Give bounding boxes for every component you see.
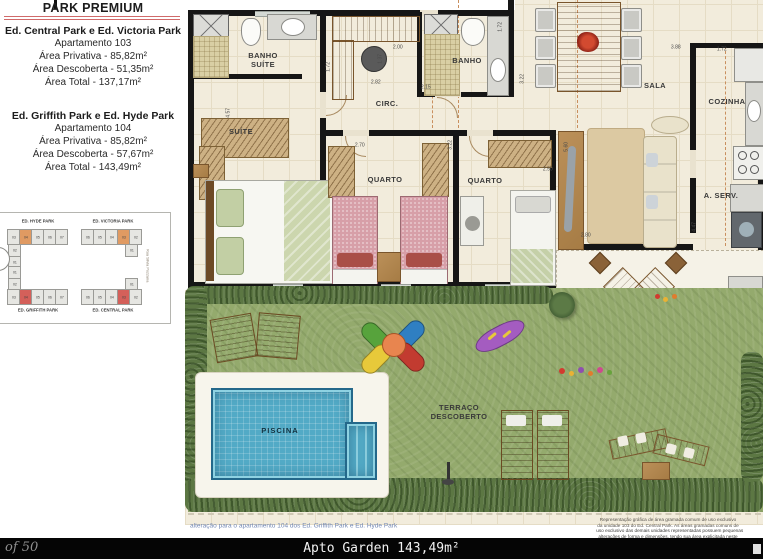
room-label-banho: BANHO	[439, 57, 495, 66]
brochure-page: PARK PREMIUM Ed. Central Park e Ed. Vict…	[0, 0, 763, 559]
unit-number: 02	[134, 235, 138, 239]
block1-line: Área Descoberta - 51,35m²	[0, 64, 186, 75]
dimension: 3.88	[671, 45, 681, 50]
burner	[750, 151, 759, 160]
unit-number: 02	[13, 249, 17, 253]
dimension: 2.15	[421, 85, 431, 90]
burner	[738, 165, 747, 174]
ottoman	[651, 116, 689, 134]
dimension: 2.50	[543, 167, 553, 172]
unit-number: 07	[60, 235, 64, 239]
keyplan-building-griffith: 03 04 05 06 07	[8, 289, 68, 305]
cushion	[646, 153, 658, 167]
stove	[733, 146, 763, 180]
dimension: 1.72	[326, 62, 331, 72]
keyplan-building-label: ED. CENTRAL PARK	[92, 308, 134, 312]
dimension: 2.82	[371, 80, 381, 85]
tree	[549, 292, 575, 318]
dimension: 3.22	[520, 74, 525, 84]
dimension: 1.72	[717, 47, 727, 52]
cushion	[617, 435, 629, 447]
room-label-sala: SALA	[623, 82, 687, 91]
wardrobe	[422, 143, 449, 197]
flower	[569, 371, 574, 376]
footer-glyph	[753, 544, 761, 554]
exterior	[185, 0, 515, 10]
site-key-plan: ED. HYDE PARK 03 04 05 06 07 02 01 ED. V…	[0, 212, 171, 324]
table-centerpiece-flowers	[577, 32, 599, 52]
pillow	[406, 253, 442, 267]
unit-number: 04	[110, 295, 114, 299]
unit-number: 06	[48, 235, 52, 239]
desk	[332, 16, 420, 42]
shower-box	[424, 14, 458, 36]
cushion	[646, 195, 658, 209]
sun-lounger	[537, 410, 569, 480]
unit-number: 01	[130, 249, 134, 253]
room-label-aserv: A. SERV.	[689, 192, 753, 201]
unit-number: 01	[13, 271, 17, 275]
pool-steps	[345, 422, 377, 480]
unit-number: 05	[36, 235, 40, 239]
unit-cell: 07	[55, 229, 68, 245]
dimension: 2.70	[355, 143, 365, 148]
flower-bed	[557, 364, 617, 380]
keyplan-building-hyde: 03 04 05 06 07	[8, 229, 68, 245]
garden-table	[642, 462, 670, 480]
unit-cell: 07	[55, 289, 68, 305]
dimension: 5.60	[564, 142, 569, 152]
door-swing	[437, 97, 458, 118]
accent-line	[4, 16, 180, 17]
flower	[672, 294, 677, 299]
room-label-quarto1: QUARTO	[353, 176, 417, 185]
flower	[607, 370, 612, 375]
single-bed	[400, 196, 448, 284]
sun-lounger	[209, 313, 258, 364]
dining-chair	[621, 36, 642, 60]
room-label-circ: CIRC.	[361, 100, 413, 109]
dining-chair	[535, 36, 556, 60]
washing-machine	[731, 212, 762, 248]
play-toy	[365, 318, 421, 374]
chair	[465, 216, 480, 231]
refrigerator	[734, 48, 763, 82]
office-chair	[361, 46, 387, 72]
keyplan-building-central: 06 05 04 03 02	[82, 289, 142, 305]
single-bed	[510, 190, 556, 286]
accent-line	[4, 19, 180, 20]
block1-heading: Ed. Central Park e Ed. Victoria Park	[0, 25, 186, 37]
garden-bench-set	[610, 426, 710, 482]
unit-number: 03	[12, 295, 16, 299]
dimension: 2.80	[581, 233, 591, 238]
block2-line: Apartamento 104	[0, 123, 186, 134]
bed-sheet	[333, 269, 377, 284]
info-panel: PARK PREMIUM Ed. Central Park e Ed. Vict…	[0, 0, 186, 538]
room-label-quarto2: QUARTO	[453, 177, 517, 186]
lounger-pillow	[542, 415, 562, 426]
block2-heading: Ed. Griffith Park e Ed. Hyde Park	[0, 110, 186, 122]
dining-chair	[621, 8, 642, 32]
unit-number: 03	[122, 235, 126, 239]
boundary-dashed-line	[188, 513, 761, 515]
street-name-label: Rua Silvia Pozzana	[146, 249, 150, 283]
shower-floor	[193, 36, 229, 78]
unit-number: 06	[48, 295, 52, 299]
panel-title: PARK PREMIUM	[0, 1, 186, 15]
dimension: 4.47	[692, 222, 697, 232]
cushion	[635, 432, 647, 444]
block2-line: Área Privativa - 85,82m²	[0, 136, 186, 147]
chair	[589, 252, 612, 275]
pillow	[337, 253, 373, 267]
room-label-cozinha: COZINHA	[693, 98, 761, 107]
dimension: 2.00	[393, 45, 403, 50]
block2-line: Área Total - 143,49m²	[0, 162, 186, 173]
burner	[750, 165, 759, 174]
surfboard	[564, 146, 576, 232]
label-line: DESCOBERTO	[431, 412, 488, 421]
outdoor-shower	[441, 462, 455, 486]
unit-number: 06	[86, 295, 90, 299]
block1-line: Apartamento 103	[0, 38, 186, 49]
unit-number: 03	[12, 235, 16, 239]
unit-cell: 02	[129, 229, 142, 245]
keyplan-building-label: ED. GRIFFITH PARK	[17, 308, 59, 312]
wall	[453, 136, 459, 286]
floor-plan: projeção pavimento superior PISCINA	[185, 0, 763, 525]
burner	[738, 151, 747, 160]
dimension: 1.72	[498, 22, 503, 32]
pillow	[216, 237, 244, 275]
footer-title: Apto Garden 143,49m²	[0, 541, 763, 556]
wardrobe	[328, 146, 355, 198]
unit-number: 04	[24, 235, 28, 239]
hedge	[191, 286, 553, 304]
single-bed	[332, 196, 378, 284]
shower-base	[442, 479, 454, 485]
label-line: SUÍTE	[251, 60, 275, 69]
dining-chair	[535, 64, 556, 88]
unit-number: 04	[110, 235, 114, 239]
door-opening	[690, 150, 696, 178]
washbasin	[281, 18, 305, 36]
alteration-note: alteração para o apartamento 104 dos Ed.…	[190, 523, 397, 530]
unit-number: 05	[36, 295, 40, 299]
unit-number: 02	[134, 295, 138, 299]
block1-line: Área Privativa - 85,82m²	[0, 51, 186, 62]
keyplan-building-label: ED. VICTORIA PARK	[92, 219, 134, 223]
shower-box	[193, 14, 229, 38]
rug	[587, 128, 645, 244]
chair	[665, 252, 688, 275]
unit-cell: 01	[125, 244, 138, 257]
headboard	[206, 181, 214, 281]
pillow	[216, 189, 244, 227]
wall	[690, 43, 696, 233]
dimension: 4.57	[226, 108, 231, 118]
unit-cell: 02	[129, 289, 142, 305]
flower-bed	[653, 292, 683, 304]
toy-center	[382, 333, 406, 357]
unit-number: 06	[86, 235, 90, 239]
flower	[578, 367, 584, 373]
sun-lounger	[255, 312, 301, 359]
desk	[332, 40, 354, 100]
unit-number: 01	[13, 261, 17, 265]
unit-number: 01	[130, 283, 134, 287]
toilet	[241, 18, 261, 46]
flower	[663, 297, 668, 302]
disclaimer-line: Representação gráfica de área gramada co…	[596, 519, 740, 523]
dining-chair	[535, 8, 556, 32]
unit-number: 04	[24, 295, 28, 299]
unit-number: 02	[13, 283, 17, 287]
keyplan-building-victoria: 06 05 04 03 02	[82, 229, 142, 245]
unit-number: 05	[98, 235, 102, 239]
hedge	[741, 352, 763, 482]
blanket	[511, 249, 553, 283]
sofa	[643, 136, 677, 248]
nightstand	[377, 252, 401, 282]
room-label-piscina: PISCINA	[235, 426, 325, 435]
washer-door	[739, 222, 754, 237]
disclaimer-line: uso exclusivo das demais unidades repres…	[596, 530, 740, 534]
door-swing	[469, 136, 490, 157]
pillow	[515, 196, 551, 213]
projection-line	[725, 46, 726, 246]
block2-line: Área Descoberta - 57,67m²	[0, 149, 186, 160]
double-bed	[205, 180, 333, 284]
board-stripe	[502, 330, 512, 339]
flower	[588, 371, 593, 376]
keyplan-building-label: ED. HYDE PARK	[17, 219, 59, 223]
wardrobe	[488, 140, 552, 168]
flower	[655, 294, 660, 299]
nightstand	[193, 164, 209, 178]
dimension: 3.22	[448, 140, 453, 150]
board-stripe	[487, 332, 497, 341]
dimension: 1.37	[378, 54, 383, 64]
room-label-banho-suite: BANHO SUÍTE	[231, 52, 295, 69]
bed-sheet	[401, 269, 447, 284]
unit-number: 05	[98, 295, 102, 299]
blanket	[284, 181, 330, 281]
room-label-terraco: TERRAÇO DESCOBERTO	[407, 404, 511, 421]
unit-number: 07	[60, 295, 64, 299]
block1-line: Área Total - 137,17m²	[0, 77, 186, 88]
flower	[559, 368, 565, 374]
room-label-suite: SUÍTE	[209, 128, 273, 137]
unit-number: 03	[122, 295, 126, 299]
toilet	[461, 18, 485, 46]
flower	[597, 367, 603, 373]
